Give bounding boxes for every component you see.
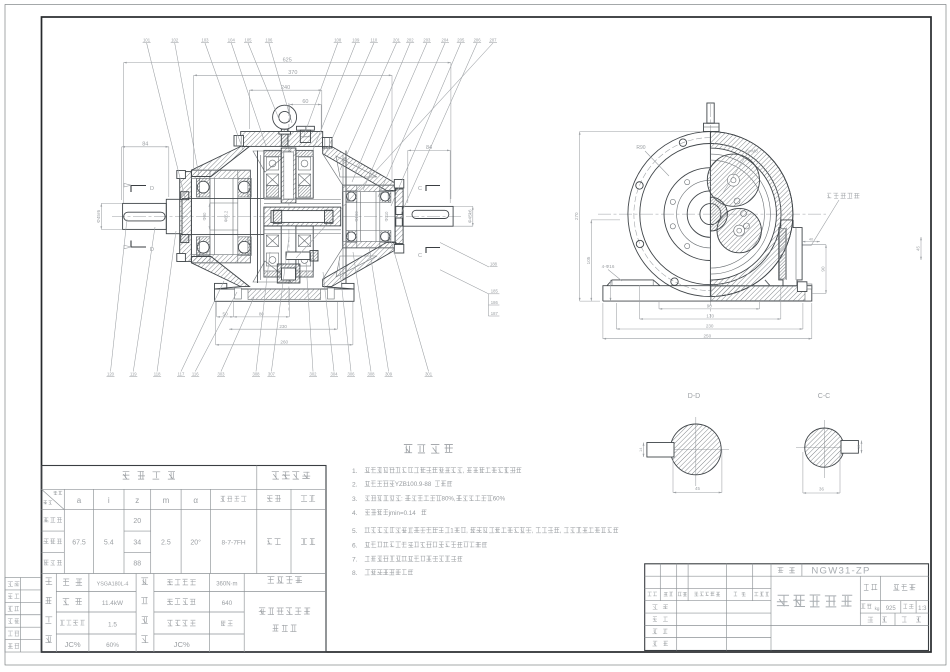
svg-text:186: 186 <box>491 300 499 305</box>
svg-text:1.: 1. <box>352 468 358 475</box>
svg-text:40: 40 <box>809 236 814 241</box>
svg-text:,: , <box>560 528 562 535</box>
svg-text:302: 302 <box>310 372 318 377</box>
svg-text:90: 90 <box>707 304 713 309</box>
svg-text:206: 206 <box>474 38 482 43</box>
svg-text:60: 60 <box>302 99 308 105</box>
svg-text:11.4kW: 11.4kW <box>102 600 124 607</box>
svg-text:6.: 6. <box>352 542 358 549</box>
svg-text:C: C <box>418 253 422 259</box>
svg-text:306: 306 <box>348 372 356 377</box>
svg-text:Φ45r6: Φ45r6 <box>96 210 101 223</box>
svg-text:jmin=0.14: jmin=0.14 <box>388 510 417 517</box>
svg-text:D: D <box>150 186 154 192</box>
svg-text:116: 116 <box>192 372 199 377</box>
svg-text:67.5: 67.5 <box>72 539 86 546</box>
svg-text:8.: 8. <box>352 570 358 577</box>
svg-text:230: 230 <box>279 324 287 329</box>
svg-text::: : <box>401 496 403 503</box>
svg-text:201: 201 <box>393 38 401 43</box>
svg-text:45: 45 <box>695 486 700 491</box>
svg-text:625: 625 <box>283 57 292 63</box>
svg-text:4.: 4. <box>352 510 358 517</box>
svg-text:z: z <box>135 496 139 505</box>
svg-text:307: 307 <box>268 372 276 377</box>
svg-text:118: 118 <box>154 372 161 377</box>
svg-text:C-C: C-C <box>818 393 830 400</box>
svg-text:207: 207 <box>490 38 498 43</box>
svg-text:105: 105 <box>586 256 591 264</box>
svg-text:104: 104 <box>228 38 236 43</box>
svg-text:103: 103 <box>202 38 210 43</box>
svg-text:,: , <box>466 528 468 535</box>
svg-text:102: 102 <box>171 38 179 43</box>
svg-text:204: 204 <box>442 38 450 43</box>
svg-text:R90: R90 <box>636 145 645 151</box>
svg-text:14: 14 <box>639 448 643 452</box>
svg-text:8-7-7FH: 8-7-7FH <box>222 539 246 546</box>
svg-text:YSGA180L-4: YSGA180L-4 <box>97 582 129 588</box>
svg-text:188: 188 <box>490 262 498 267</box>
svg-text:5.: 5. <box>352 528 358 535</box>
svg-text:m: m <box>163 496 170 505</box>
svg-text:308: 308 <box>253 372 261 377</box>
svg-text:C: C <box>418 186 422 192</box>
svg-text:YZB100.9-88: YZB100.9-88 <box>395 481 432 488</box>
svg-text:60%: 60% <box>106 642 119 649</box>
svg-text:4-Φ16: 4-Φ16 <box>602 264 615 269</box>
svg-text:JC%: JC% <box>65 640 81 649</box>
svg-text:110: 110 <box>371 38 378 43</box>
svg-text:117: 117 <box>178 372 185 377</box>
svg-text:106: 106 <box>265 38 273 43</box>
svg-text:D-D: D-D <box>688 393 700 400</box>
svg-text:Φ65.2: Φ65.2 <box>224 210 229 222</box>
svg-text:105: 105 <box>245 38 253 43</box>
svg-text:304: 304 <box>331 372 339 377</box>
svg-text:88: 88 <box>133 561 141 568</box>
svg-text:308: 308 <box>368 372 376 377</box>
svg-text:270: 270 <box>574 212 579 220</box>
svg-text:a: a <box>77 496 82 505</box>
svg-text:84: 84 <box>142 142 148 148</box>
svg-text:109: 109 <box>352 38 360 43</box>
svg-text:360N·m: 360N·m <box>216 582 237 588</box>
svg-text:2.: 2. <box>352 481 358 488</box>
svg-text:10: 10 <box>857 445 861 449</box>
svg-text:Φ45k6: Φ45k6 <box>467 209 472 223</box>
svg-text:20°: 20° <box>190 538 201 546</box>
svg-text:185: 185 <box>491 289 499 294</box>
svg-text:80%,: 80%, <box>442 496 456 503</box>
svg-text:250: 250 <box>704 333 712 338</box>
svg-text:187: 187 <box>491 311 499 316</box>
svg-text:20: 20 <box>133 518 141 525</box>
svg-text:,: , <box>531 528 533 535</box>
svg-text:108: 108 <box>334 38 342 43</box>
svg-text:119: 119 <box>130 372 137 377</box>
svg-text:i: i <box>108 496 110 505</box>
svg-text:JC%: JC% <box>174 640 190 649</box>
svg-text:101: 101 <box>143 38 151 43</box>
svg-text:301: 301 <box>425 372 433 377</box>
svg-text:120: 120 <box>107 372 115 377</box>
svg-text:230: 230 <box>706 324 714 329</box>
svg-text:370: 370 <box>288 70 297 76</box>
svg-text:kg: kg <box>875 606 880 611</box>
svg-text:α: α <box>193 496 198 505</box>
svg-text:205: 205 <box>457 38 465 43</box>
svg-text:45: 45 <box>916 246 921 251</box>
svg-text:Φ100: Φ100 <box>354 211 359 222</box>
svg-text:1: 1 <box>450 528 454 535</box>
svg-text:60%: 60% <box>493 496 506 503</box>
svg-text:Φ90: Φ90 <box>202 212 207 221</box>
svg-text:Φ110: Φ110 <box>384 211 389 222</box>
svg-text:640: 640 <box>222 600 233 607</box>
svg-text:260: 260 <box>280 340 288 345</box>
svg-text:80: 80 <box>259 312 265 317</box>
svg-text:1.5: 1.5 <box>108 622 117 629</box>
svg-text:5.4: 5.4 <box>104 539 114 546</box>
svg-text:7.: 7. <box>352 557 358 564</box>
svg-text:6×M8: 6×M8 <box>746 149 758 154</box>
svg-text:36: 36 <box>819 487 824 492</box>
svg-text:170: 170 <box>706 314 714 319</box>
svg-text:,: , <box>463 468 465 475</box>
svg-text:2.5: 2.5 <box>161 539 171 546</box>
svg-text:34: 34 <box>133 539 141 546</box>
svg-text:90: 90 <box>821 266 826 272</box>
svg-text:925: 925 <box>886 606 897 612</box>
svg-text:3.: 3. <box>352 496 358 503</box>
svg-text:309: 309 <box>385 372 393 377</box>
svg-text:1:3: 1:3 <box>918 606 927 612</box>
svg-text:303: 303 <box>218 372 226 377</box>
svg-text:203: 203 <box>423 38 431 43</box>
svg-text:NGW31-ZP: NGW31-ZP <box>811 566 870 577</box>
svg-text:202: 202 <box>407 38 415 43</box>
